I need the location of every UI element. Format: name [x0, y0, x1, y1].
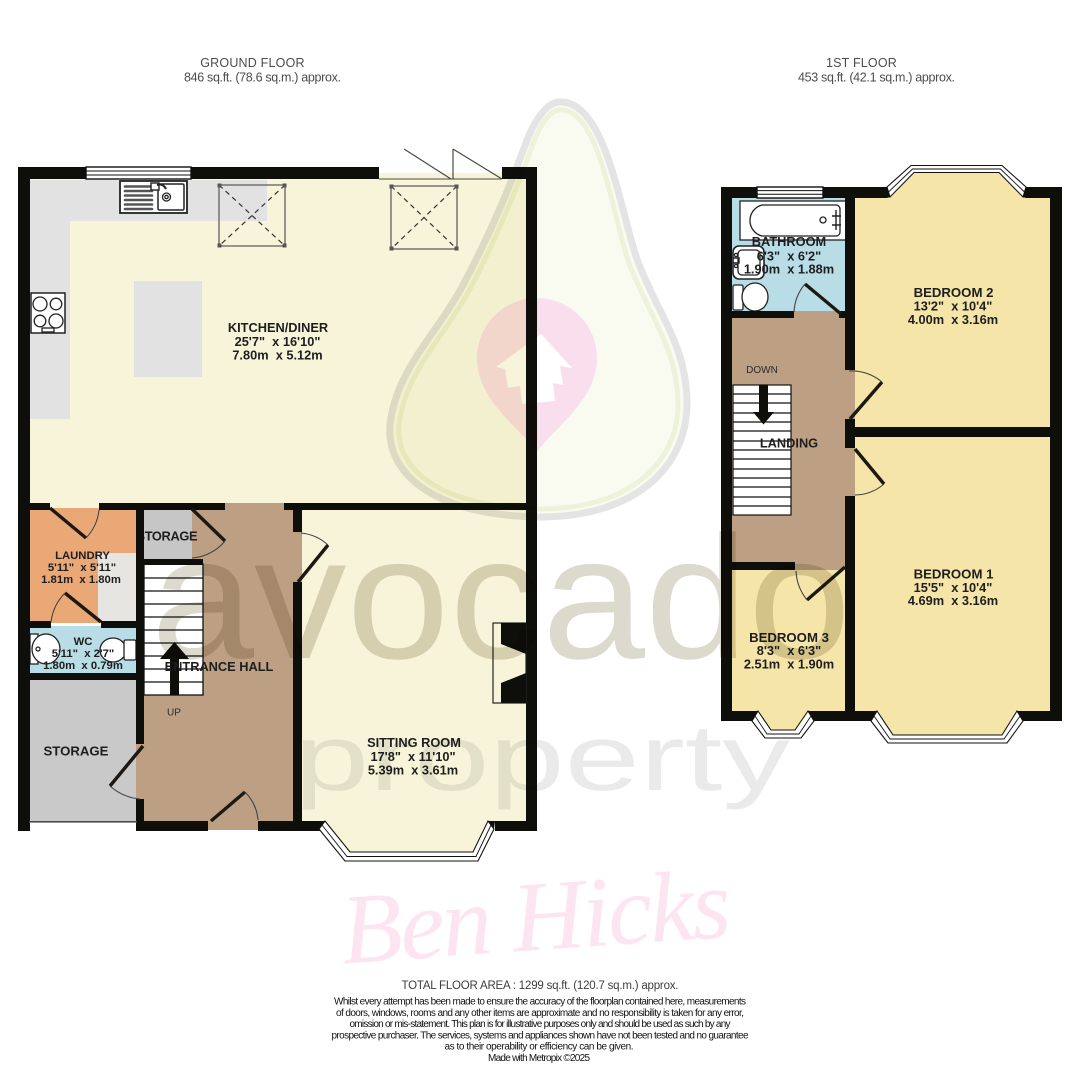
svg-text:4.00m x 3.16m: 4.00m x 3.16m	[908, 312, 998, 327]
svg-text:846 sq.ft. (78.6 sq.m.) approx: 846 sq.ft. (78.6 sq.m.) approx.	[184, 71, 341, 85]
svg-text:STORAGE: STORAGE	[44, 744, 109, 759]
svg-text:as to their operability or eff: as to their operability or efficiency ca…	[445, 1042, 634, 1053]
svg-text:WC: WC	[74, 636, 93, 648]
svg-text:property: property	[294, 705, 790, 810]
svg-text:4.69m x 3.16m: 4.69m x 3.16m	[908, 593, 998, 608]
svg-text:1.90m x 1.88m: 1.90m x 1.88m	[744, 262, 834, 277]
svg-text:Made with Metropix ©2025: Made with Metropix ©2025	[488, 1053, 590, 1064]
svg-text:GROUND FLOOR: GROUND FLOOR	[200, 56, 305, 70]
svg-text:453 sq.ft. (42.1 sq.m.) approx: 453 sq.ft. (42.1 sq.m.) approx.	[798, 71, 955, 85]
svg-text:1.81m x 1.80m: 1.81m x 1.80m	[41, 574, 121, 586]
svg-text:of doors, windows, rooms and a: of doors, windows, rooms and any other i…	[336, 1008, 744, 1019]
svg-text:TOTAL FLOOR AREA : 1299 sq.ft.: TOTAL FLOOR AREA : 1299 sq.ft. (120.7 sq…	[402, 980, 679, 992]
svg-text:5'11" x 5'11": 5'11" x 5'11"	[48, 562, 116, 574]
svg-text:KITCHEN/DINER: KITCHEN/DINER	[228, 320, 328, 335]
svg-text:LAUNDRY: LAUNDRY	[55, 550, 110, 562]
svg-text:5'11" x 2'7": 5'11" x 2'7"	[52, 648, 115, 660]
svg-text:LANDING: LANDING	[760, 436, 818, 451]
svg-text:UP: UP	[167, 708, 181, 719]
svg-text:DOWN: DOWN	[746, 365, 778, 376]
svg-text:Whilst every attempt has been: Whilst every attempt has been made to en…	[334, 997, 746, 1008]
svg-text:1ST FLOOR: 1ST FLOOR	[826, 56, 897, 70]
svg-text:7.80m x 5.12m: 7.80m x 5.12m	[232, 348, 322, 363]
svg-text:prospective purchaser. The ser: prospective purchaser. The services, sys…	[332, 1030, 749, 1041]
svg-text:1.80m x 0.79m: 1.80m x 0.79m	[43, 660, 123, 672]
svg-text:omission or mis-statement. Thi: omission or mis-statement. This plan is …	[350, 1019, 731, 1030]
svg-text:avocado: avocado	[151, 501, 851, 696]
svg-text:BATHROOM: BATHROOM	[752, 234, 826, 249]
